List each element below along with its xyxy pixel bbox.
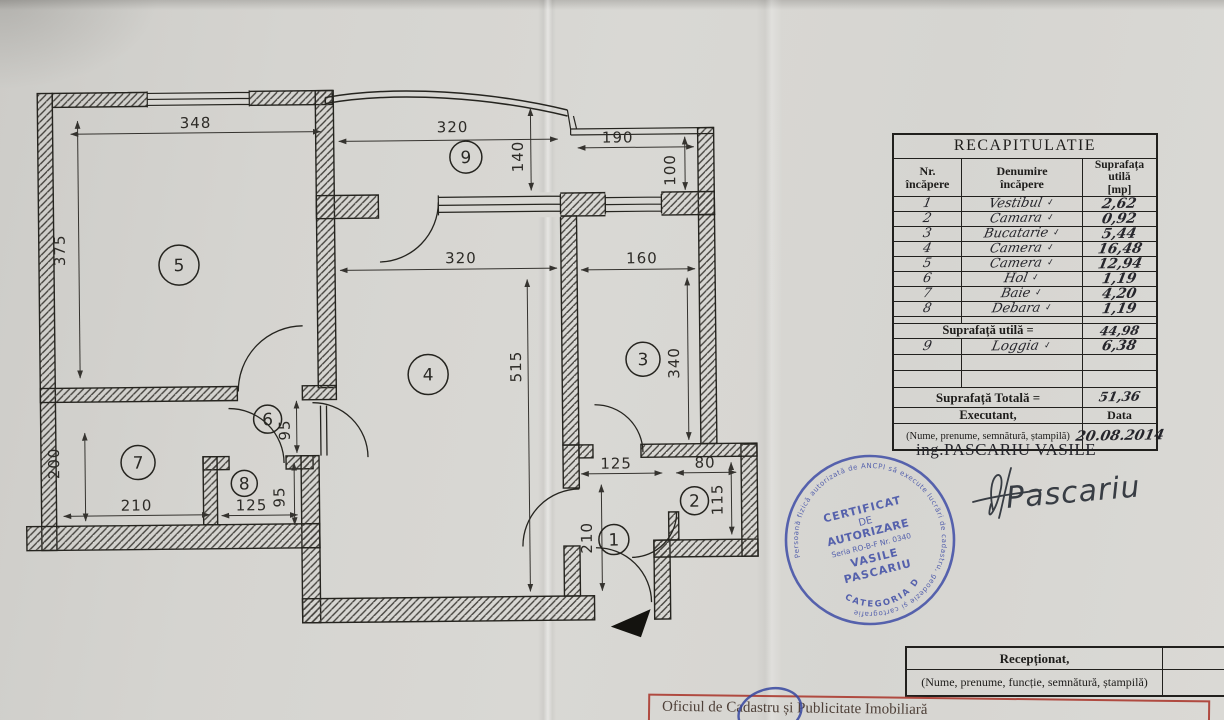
dim-label: 375 <box>51 234 69 266</box>
svg-text:8: 8 <box>239 474 250 494</box>
subtotal-row: Suprafață utilă = 44,98 <box>894 324 1156 339</box>
executant-row: Executant, Data <box>894 408 1156 424</box>
table-row: 5 Camera✓ 12,94 <box>894 257 1156 272</box>
table-row: 4 Camera✓ 16,48 <box>894 242 1156 257</box>
receptionat-label: Recepționat, <box>907 648 1163 669</box>
windows <box>147 85 714 221</box>
check-mark: ✓ <box>1046 244 1055 254</box>
check-mark: ✓ <box>1032 274 1041 284</box>
dim-label: 140 <box>509 141 527 173</box>
dim-label: 95 <box>270 486 288 507</box>
dim-label: 80 <box>694 453 715 471</box>
reception-note: (Nume, prenume, funcție, semnătură, ștam… <box>907 670 1163 695</box>
signature-flourish <box>989 475 1001 515</box>
table-row: 7 Baie✓ 4,20 <box>894 287 1156 302</box>
room-number-3: 3 <box>626 342 660 376</box>
dim-label: 320 <box>445 249 477 267</box>
data-label: Data <box>1163 648 1224 669</box>
table-row: 6 Hol✓ 1,19 <box>894 272 1156 287</box>
dim-label: 320 <box>437 118 469 136</box>
handwritten-signature: Pascariu <box>955 452 1165 537</box>
room-number-4: 4 <box>408 354 448 394</box>
table-row: 8 Debara✓ 1,19 <box>894 302 1156 317</box>
dim-label: 100 <box>661 154 679 186</box>
svg-text:2: 2 <box>689 492 700 512</box>
svg-text:3: 3 <box>637 350 648 370</box>
recap-title: RECAPITULATIE <box>894 138 1156 155</box>
entrance-arrow <box>611 609 651 637</box>
loggia-curved-wall <box>325 89 567 118</box>
room-number-9: 9 <box>450 141 482 173</box>
scanned-floor-plan-document: 348 375 320 140 190 100 320 160 515 340 … <box>0 0 1224 720</box>
check-mark: ✓ <box>1046 214 1055 224</box>
dim-label: 340 <box>665 347 683 379</box>
check-mark: ✓ <box>1044 304 1053 314</box>
dim-label: 95 <box>276 419 294 440</box>
col-header-denumire: Denumire încăpere <box>962 159 1083 196</box>
svg-text:5: 5 <box>173 256 184 276</box>
dimension-lines <box>59 106 737 596</box>
room-number-8: 8 <box>231 470 257 496</box>
room-number-7: 7 <box>121 445 155 479</box>
col-header-suprafata: Suprafața utilă [mp] <box>1083 159 1156 196</box>
dim-label: 160 <box>626 249 658 267</box>
loggia-row: 9 Loggia✓ 6,38 <box>894 339 1156 355</box>
empty-row <box>894 371 1156 388</box>
dim-label: 210 <box>121 496 153 514</box>
svg-text:9: 9 <box>460 148 471 168</box>
dim-label: 125 <box>236 496 268 514</box>
dim-label: 515 <box>507 351 525 383</box>
check-mark: ✓ <box>1035 289 1044 299</box>
check-mark: ✓ <box>1046 259 1055 269</box>
recap-table: RECAPITULATIE Nr. încăpere Denumire încă… <box>892 133 1158 451</box>
svg-text:7: 7 <box>133 453 144 473</box>
table-row: 2 Camara✓ 0,92 <box>894 212 1156 227</box>
total-row: Suprafață Totală = 51,36 <box>894 388 1156 408</box>
dim-label: 190 <box>602 128 634 146</box>
round-authorization-stamp: Persoană fizică autorizată de ANCPI să e… <box>778 448 963 633</box>
dim-label: 115 <box>708 484 726 516</box>
room-number-5: 5 <box>159 245 199 285</box>
svg-text:1: 1 <box>608 531 619 551</box>
dim-label: 125 <box>600 454 632 472</box>
col-header-nr: Nr. încăpere <box>894 159 962 196</box>
room-number-6: 6 <box>253 405 281 433</box>
reception-table: Recepționat, Data (Nume, prenume, funcți… <box>905 646 1224 697</box>
table-row: 1 Vestibul✓ 2,62 <box>894 197 1156 212</box>
empty-row <box>894 355 1156 371</box>
signature-text: Pascariu <box>1005 469 1142 516</box>
table-row: 3 Bucatarie✓ 5,44 <box>894 227 1156 242</box>
svg-text:6: 6 <box>262 410 273 430</box>
room-number-1: 1 <box>599 524 629 554</box>
check-mark: ✓ <box>1047 199 1056 209</box>
room-number-2: 2 <box>680 487 708 515</box>
dim-label: 348 <box>180 114 212 132</box>
check-mark: ✓ <box>1043 341 1052 351</box>
check-mark: ✓ <box>1052 229 1061 239</box>
dimension-labels: 348 375 320 140 190 100 320 160 515 340 … <box>41 108 727 559</box>
svg-text:4: 4 <box>423 365 434 385</box>
dim-label: 210 <box>578 522 596 554</box>
dim-label: 200 <box>45 448 63 480</box>
pen-oval-mark <box>712 678 832 720</box>
